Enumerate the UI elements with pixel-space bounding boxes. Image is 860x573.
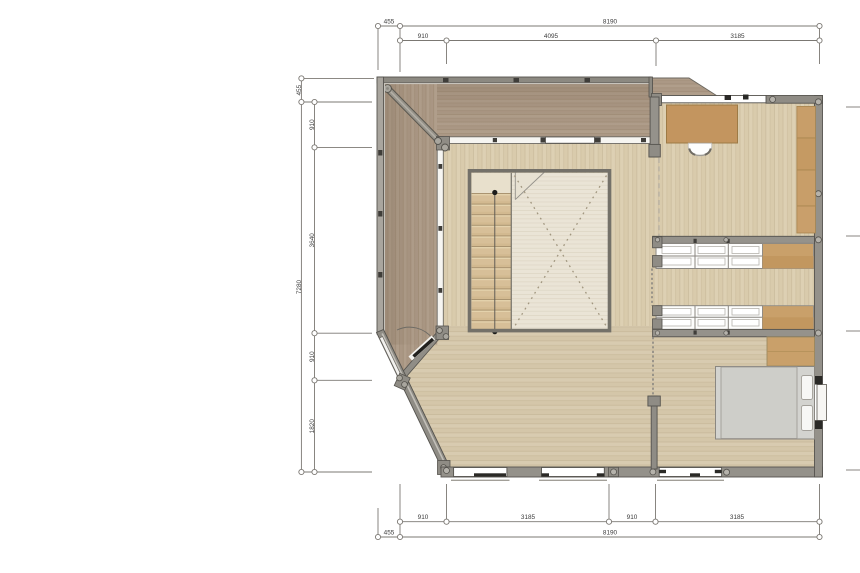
svg-text:910: 910 xyxy=(309,119,316,130)
svg-text:455: 455 xyxy=(384,530,395,537)
svg-text:455: 455 xyxy=(296,84,303,95)
svg-text:8190: 8190 xyxy=(603,530,618,537)
svg-text:3640: 3640 xyxy=(309,233,316,248)
svg-text:3185: 3185 xyxy=(521,514,536,521)
svg-text:3185: 3185 xyxy=(730,514,745,521)
svg-text:1820: 1820 xyxy=(309,419,316,434)
svg-text:910: 910 xyxy=(418,33,429,40)
svg-text:8190: 8190 xyxy=(603,19,618,26)
svg-text:910: 910 xyxy=(627,514,638,521)
svg-text:910: 910 xyxy=(309,351,316,362)
svg-text:4095: 4095 xyxy=(544,33,559,40)
svg-text:3185: 3185 xyxy=(730,33,745,40)
svg-text:910: 910 xyxy=(418,514,429,521)
svg-text:455: 455 xyxy=(384,19,395,26)
svg-text:7280: 7280 xyxy=(296,279,303,294)
